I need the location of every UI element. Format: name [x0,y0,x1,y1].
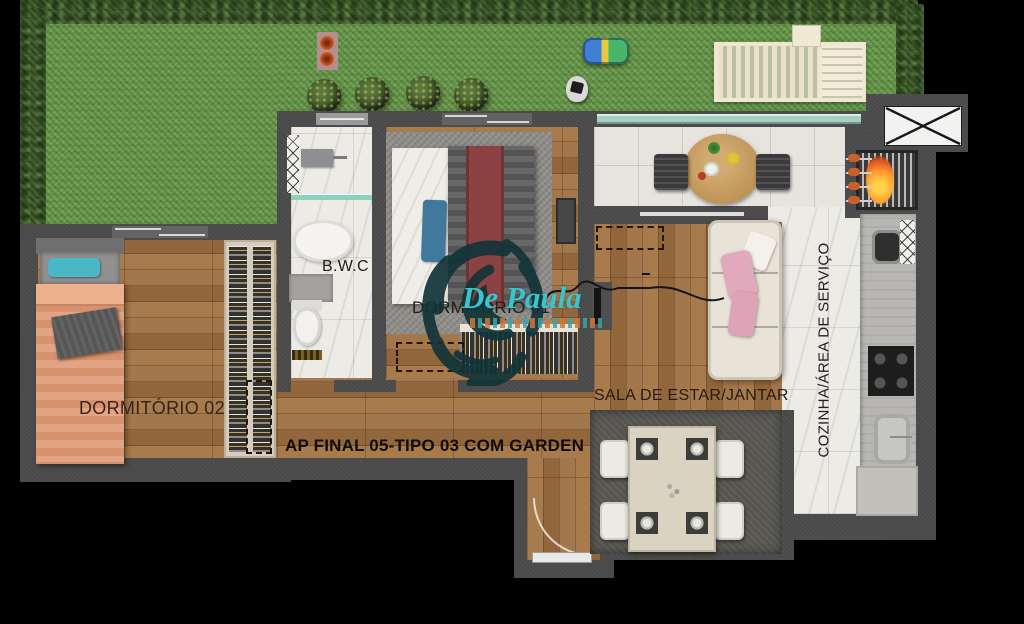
wall-bwc-right [372,111,386,392]
sink-faucet [890,436,912,438]
garden-grass-left [20,8,277,224]
wall-corridor-bottom [277,458,527,480]
dorm2-teal-pillow [48,258,100,277]
bwc-shower-arm [333,156,347,159]
sliding-door-dorm2 [112,226,208,238]
dorm1-dresser [556,198,576,244]
entrance-door-leaf [532,552,592,563]
garden-bush [307,79,341,113]
wall-corridor-north-a [334,380,396,392]
skewer-meat [848,196,860,204]
dining-chair [600,502,630,540]
stove-cooktop [868,346,914,396]
door-swing-dorm2 [246,380,272,454]
table-tomato [698,172,706,180]
dorm1-blue-pillow [421,200,447,263]
door-swing-dorm1 [396,342,464,372]
room-label-sala: SALA DE ESTAR/JANTAR [594,387,789,405]
table-plate [704,162,719,176]
plan-title: AP FINAL 05-TIPO 03 COM GARDEN [285,436,584,456]
dorm1-closet-shelf [460,324,578,332]
garden-bush [355,77,389,111]
nook-chair-left [654,154,688,190]
skewer-meat [848,182,860,190]
floor-plan: B.W.C DORMITÓRIO 01 DORMITÓRIO 02 SALA D… [0,0,1024,624]
bwc-window [316,113,368,125]
pergola-slats [718,46,818,98]
kitchen-sink [874,414,910,464]
room-label-dormitorio1: DORMITÓRIO 01 [412,298,550,318]
hedge-left [20,8,46,224]
hedge-right [896,4,924,100]
garden-side-table [792,25,821,47]
bwc-shower-glass [291,194,372,200]
wall-sala-kitchen-divider [780,410,794,540]
bwc-bathtub [293,220,353,262]
dining-chair [714,440,744,478]
dining-chair [600,440,630,478]
room-label-cozinha: COZINHA/ÁREA DE SERVIÇO [816,242,833,457]
room-label-dormitorio2: DORMITÓRIO 02 [79,398,225,419]
bwc-vanity [289,274,333,302]
bwc-duct-hatch [287,135,299,193]
hedge-top [20,0,918,24]
washing-machine [872,230,902,264]
wall-dorm1-right [578,111,594,392]
bwc-toilet [293,308,321,346]
fruit-bowl [726,152,740,165]
table-plant [708,142,720,154]
flower-icon [320,52,334,66]
dorm2-bed-fold [36,284,124,306]
room-label-bwc: B.W.C [322,258,369,276]
kitchen-duct-hatch [900,220,915,264]
tv-screen [594,288,601,324]
garden-bush [454,78,488,112]
pergola-lounger [822,46,862,98]
glass-door-dining [597,114,861,124]
skewer-meat [848,168,860,176]
wall-corridor-north-b [458,380,578,392]
dorm1-maroon-runner [466,146,504,306]
wall-entrance-left [514,458,527,568]
bbq-flame [866,156,894,204]
bwc-shower-head [301,149,333,167]
toy-car [583,38,629,64]
place-setting [636,438,658,460]
garden-bush [406,76,440,110]
flower-icon [320,36,334,50]
dorm2-wardrobe-clothes [229,246,247,452]
place-setting [686,512,708,534]
shaft-box [884,106,962,146]
nook-chair-right [756,154,790,190]
dining-chair [714,502,744,540]
wall-kitchen-bottom [792,514,936,540]
door-swing-sala [596,226,664,250]
skewer-meat [848,154,860,162]
dorm1-closet-clothes [460,332,578,374]
place-setting [636,512,658,534]
table-centerpiece [660,476,684,502]
round-dining-table [684,134,760,204]
bwc-floor-mat [292,350,322,360]
dining-divider-window [640,212,744,216]
sliding-door-dorm1 [442,113,532,125]
place-setting [686,438,708,460]
kitchen-cabinet [856,466,918,516]
